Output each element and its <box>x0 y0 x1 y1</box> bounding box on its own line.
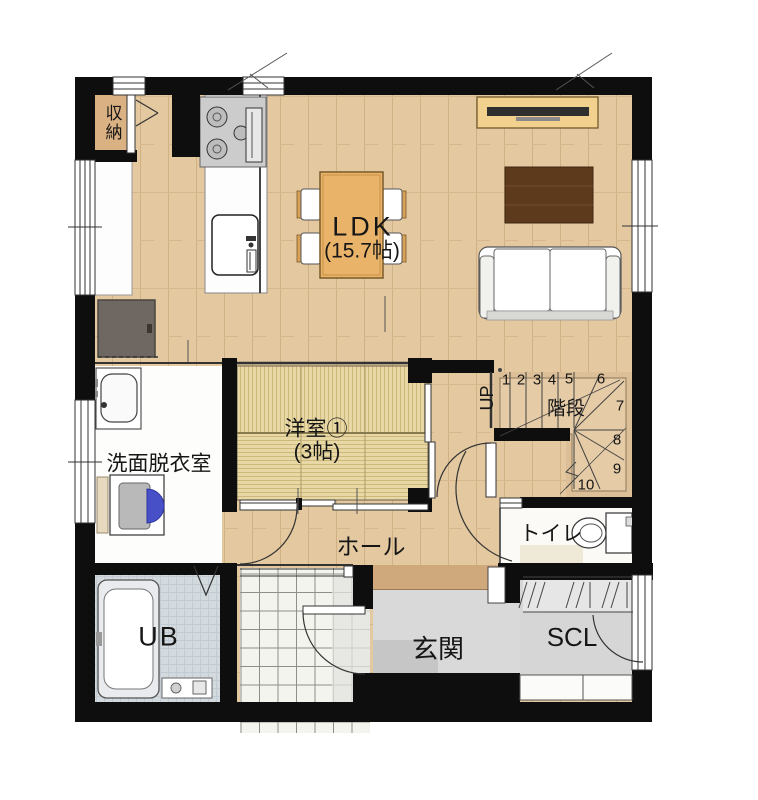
label-storage: 収納 <box>104 104 121 142</box>
stair-step-number: 9 <box>613 462 621 477</box>
rug <box>505 167 593 223</box>
label-stairs: 階段 <box>547 400 585 419</box>
washing-machine <box>97 475 164 535</box>
label-hall: ホール <box>337 536 406 559</box>
sofa <box>479 247 621 320</box>
vanity-sink <box>93 368 141 429</box>
toilet-sliding-door <box>500 498 522 508</box>
porch-rail-end <box>344 566 353 577</box>
stair-step-number: 1 <box>502 373 510 388</box>
stair-step-number: 4 <box>548 373 556 388</box>
label-washroom: 洗面脱衣室 <box>107 454 212 475</box>
label-stairs-up: UP <box>478 385 496 410</box>
label-entrance: 玄関 <box>412 636 464 662</box>
stair-step-number: 10 <box>578 478 595 493</box>
back-counter <box>95 153 132 295</box>
stove <box>200 97 266 167</box>
label-shoe-closet: SCL <box>547 624 598 650</box>
label-toilet: トイレ <box>520 524 583 545</box>
label-ldk-size: (15.7帖) <box>324 241 400 262</box>
tv-board <box>477 97 598 128</box>
stair-step-number: 6 <box>597 372 605 387</box>
stair-step-number: 3 <box>533 373 541 388</box>
refrigerator <box>98 300 155 357</box>
toilet-mat <box>520 545 583 563</box>
label-western-room: 洋室① <box>285 419 348 440</box>
window <box>113 77 145 95</box>
dining-chair <box>297 233 321 264</box>
kitchen-sink <box>212 215 258 275</box>
stair-step-number: 8 <box>613 433 621 448</box>
floor-plan: 収納 LDK (15.7帖) 洗面脱衣室 洋室① (3帖) ホール UP 階段 … <box>0 0 758 800</box>
stair-step-number: 7 <box>616 399 624 414</box>
window <box>243 77 284 95</box>
dining-chair <box>297 189 321 220</box>
entry-cabinet <box>488 567 505 603</box>
label-western-room-size: (3帖) <box>294 442 341 463</box>
stair-step-number: 5 <box>565 372 573 387</box>
stair-step-number: 2 <box>517 373 525 388</box>
window <box>632 575 652 670</box>
label-ldk: LDK <box>332 214 394 241</box>
bath-counter <box>162 678 212 698</box>
label-unit-bath: UB <box>138 624 180 651</box>
